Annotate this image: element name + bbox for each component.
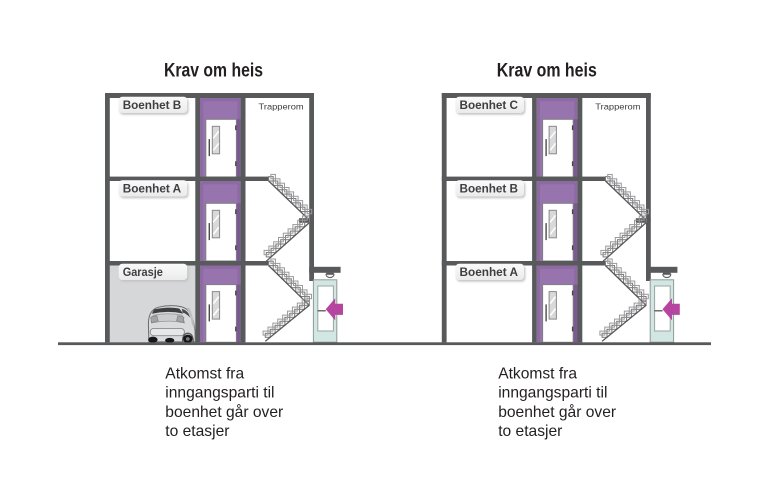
svg-text:Boenhet B: Boenhet B xyxy=(460,182,519,196)
svg-text:boenhet går over: boenhet går over xyxy=(165,403,283,421)
svg-text:to etasjer: to etasjer xyxy=(165,423,229,440)
svg-text:boenhet går over: boenhet går over xyxy=(498,403,616,421)
svg-text:to etasjer: to etasjer xyxy=(498,423,562,440)
svg-text:Garasje: Garasje xyxy=(123,265,163,279)
svg-text:inngangsparti til: inngangsparti til xyxy=(498,385,607,402)
svg-text:Trapperom: Trapperom xyxy=(259,101,304,111)
svg-text:inngangsparti til: inngangsparti til xyxy=(165,385,274,402)
svg-text:Boenhet C: Boenhet C xyxy=(460,98,519,112)
svg-text:Boenhet A: Boenhet A xyxy=(123,182,182,196)
svg-text:Atkomst fra: Atkomst fra xyxy=(165,365,244,382)
svg-text:Boenhet B: Boenhet B xyxy=(123,98,182,112)
svg-text:Krav om heis: Krav om heis xyxy=(497,61,597,82)
svg-text:Krav om heis: Krav om heis xyxy=(164,61,263,82)
svg-text:Boenhet A: Boenhet A xyxy=(460,265,519,279)
svg-text:Trapperom: Trapperom xyxy=(595,101,640,111)
svg-text:Atkomst fra: Atkomst fra xyxy=(498,365,577,382)
